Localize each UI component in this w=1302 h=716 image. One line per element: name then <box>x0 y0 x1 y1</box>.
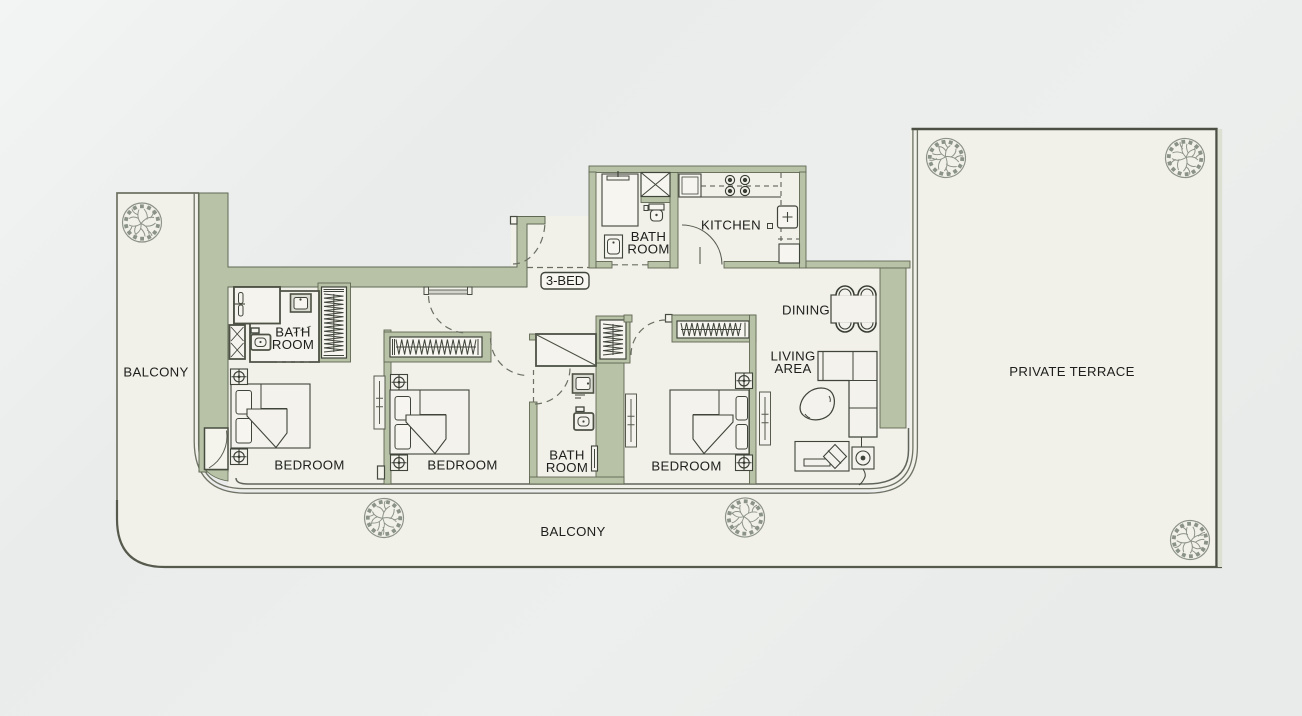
svg-text:AREA: AREA <box>774 361 811 376</box>
svg-text:BALCONY: BALCONY <box>540 524 605 539</box>
svg-text:ROOM: ROOM <box>627 242 669 257</box>
svg-text:KITCHEN: KITCHEN <box>701 218 761 233</box>
svg-text:BEDROOM: BEDROOM <box>274 458 344 473</box>
svg-text:PRIVATE TERRACE: PRIVATE TERRACE <box>1009 364 1134 379</box>
svg-text:3-BED: 3-BED <box>546 273 584 288</box>
svg-text:ROOM: ROOM <box>272 337 314 352</box>
svg-text:BEDROOM: BEDROOM <box>651 459 721 474</box>
svg-text:BALCONY: BALCONY <box>123 365 188 380</box>
svg-text:BEDROOM: BEDROOM <box>427 458 497 473</box>
svg-text:ROOM: ROOM <box>546 460 588 475</box>
svg-text:DINING: DINING <box>782 303 830 318</box>
